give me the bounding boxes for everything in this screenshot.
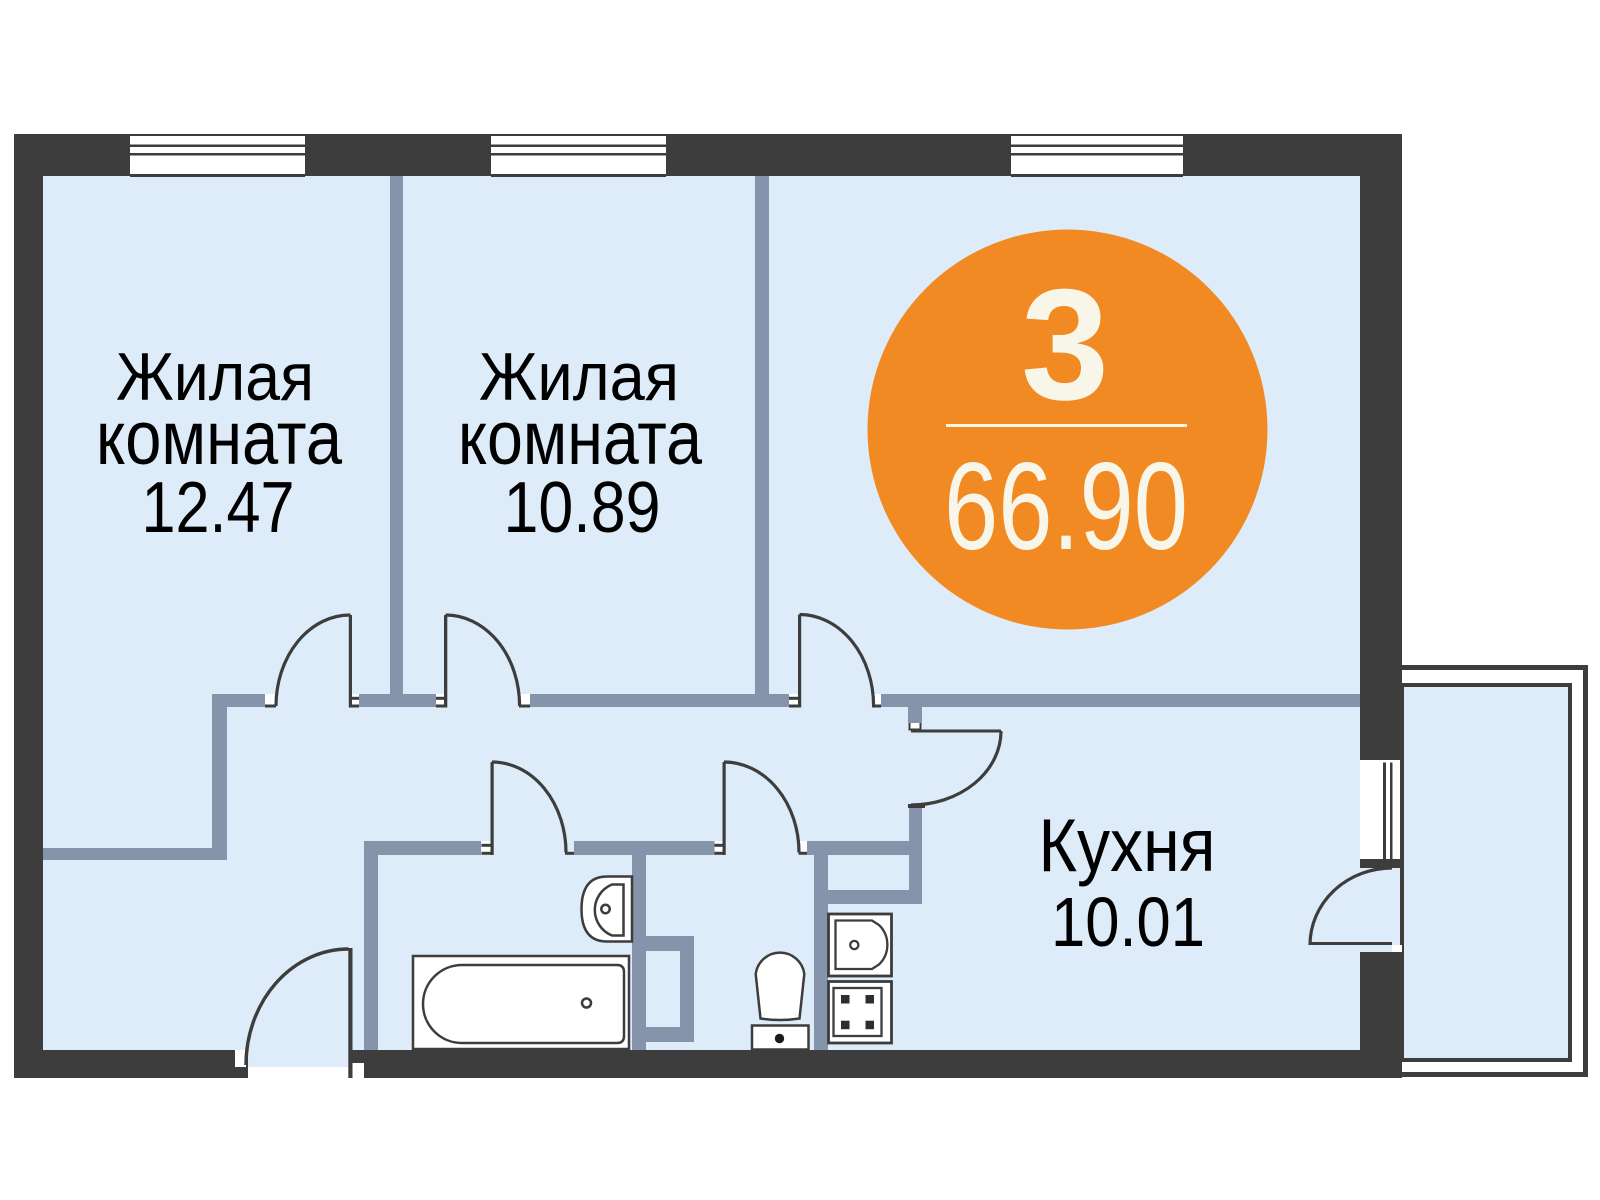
svg-text:10.01: 10.01 xyxy=(1051,883,1205,961)
svg-text:10.89: 10.89 xyxy=(504,468,661,548)
svg-text:12.47: 12.47 xyxy=(142,468,295,548)
svg-text:Кухня: Кухня xyxy=(1039,803,1216,887)
svg-text:66.90: 66.90 xyxy=(944,438,1188,576)
svg-text:3: 3 xyxy=(1021,257,1109,433)
